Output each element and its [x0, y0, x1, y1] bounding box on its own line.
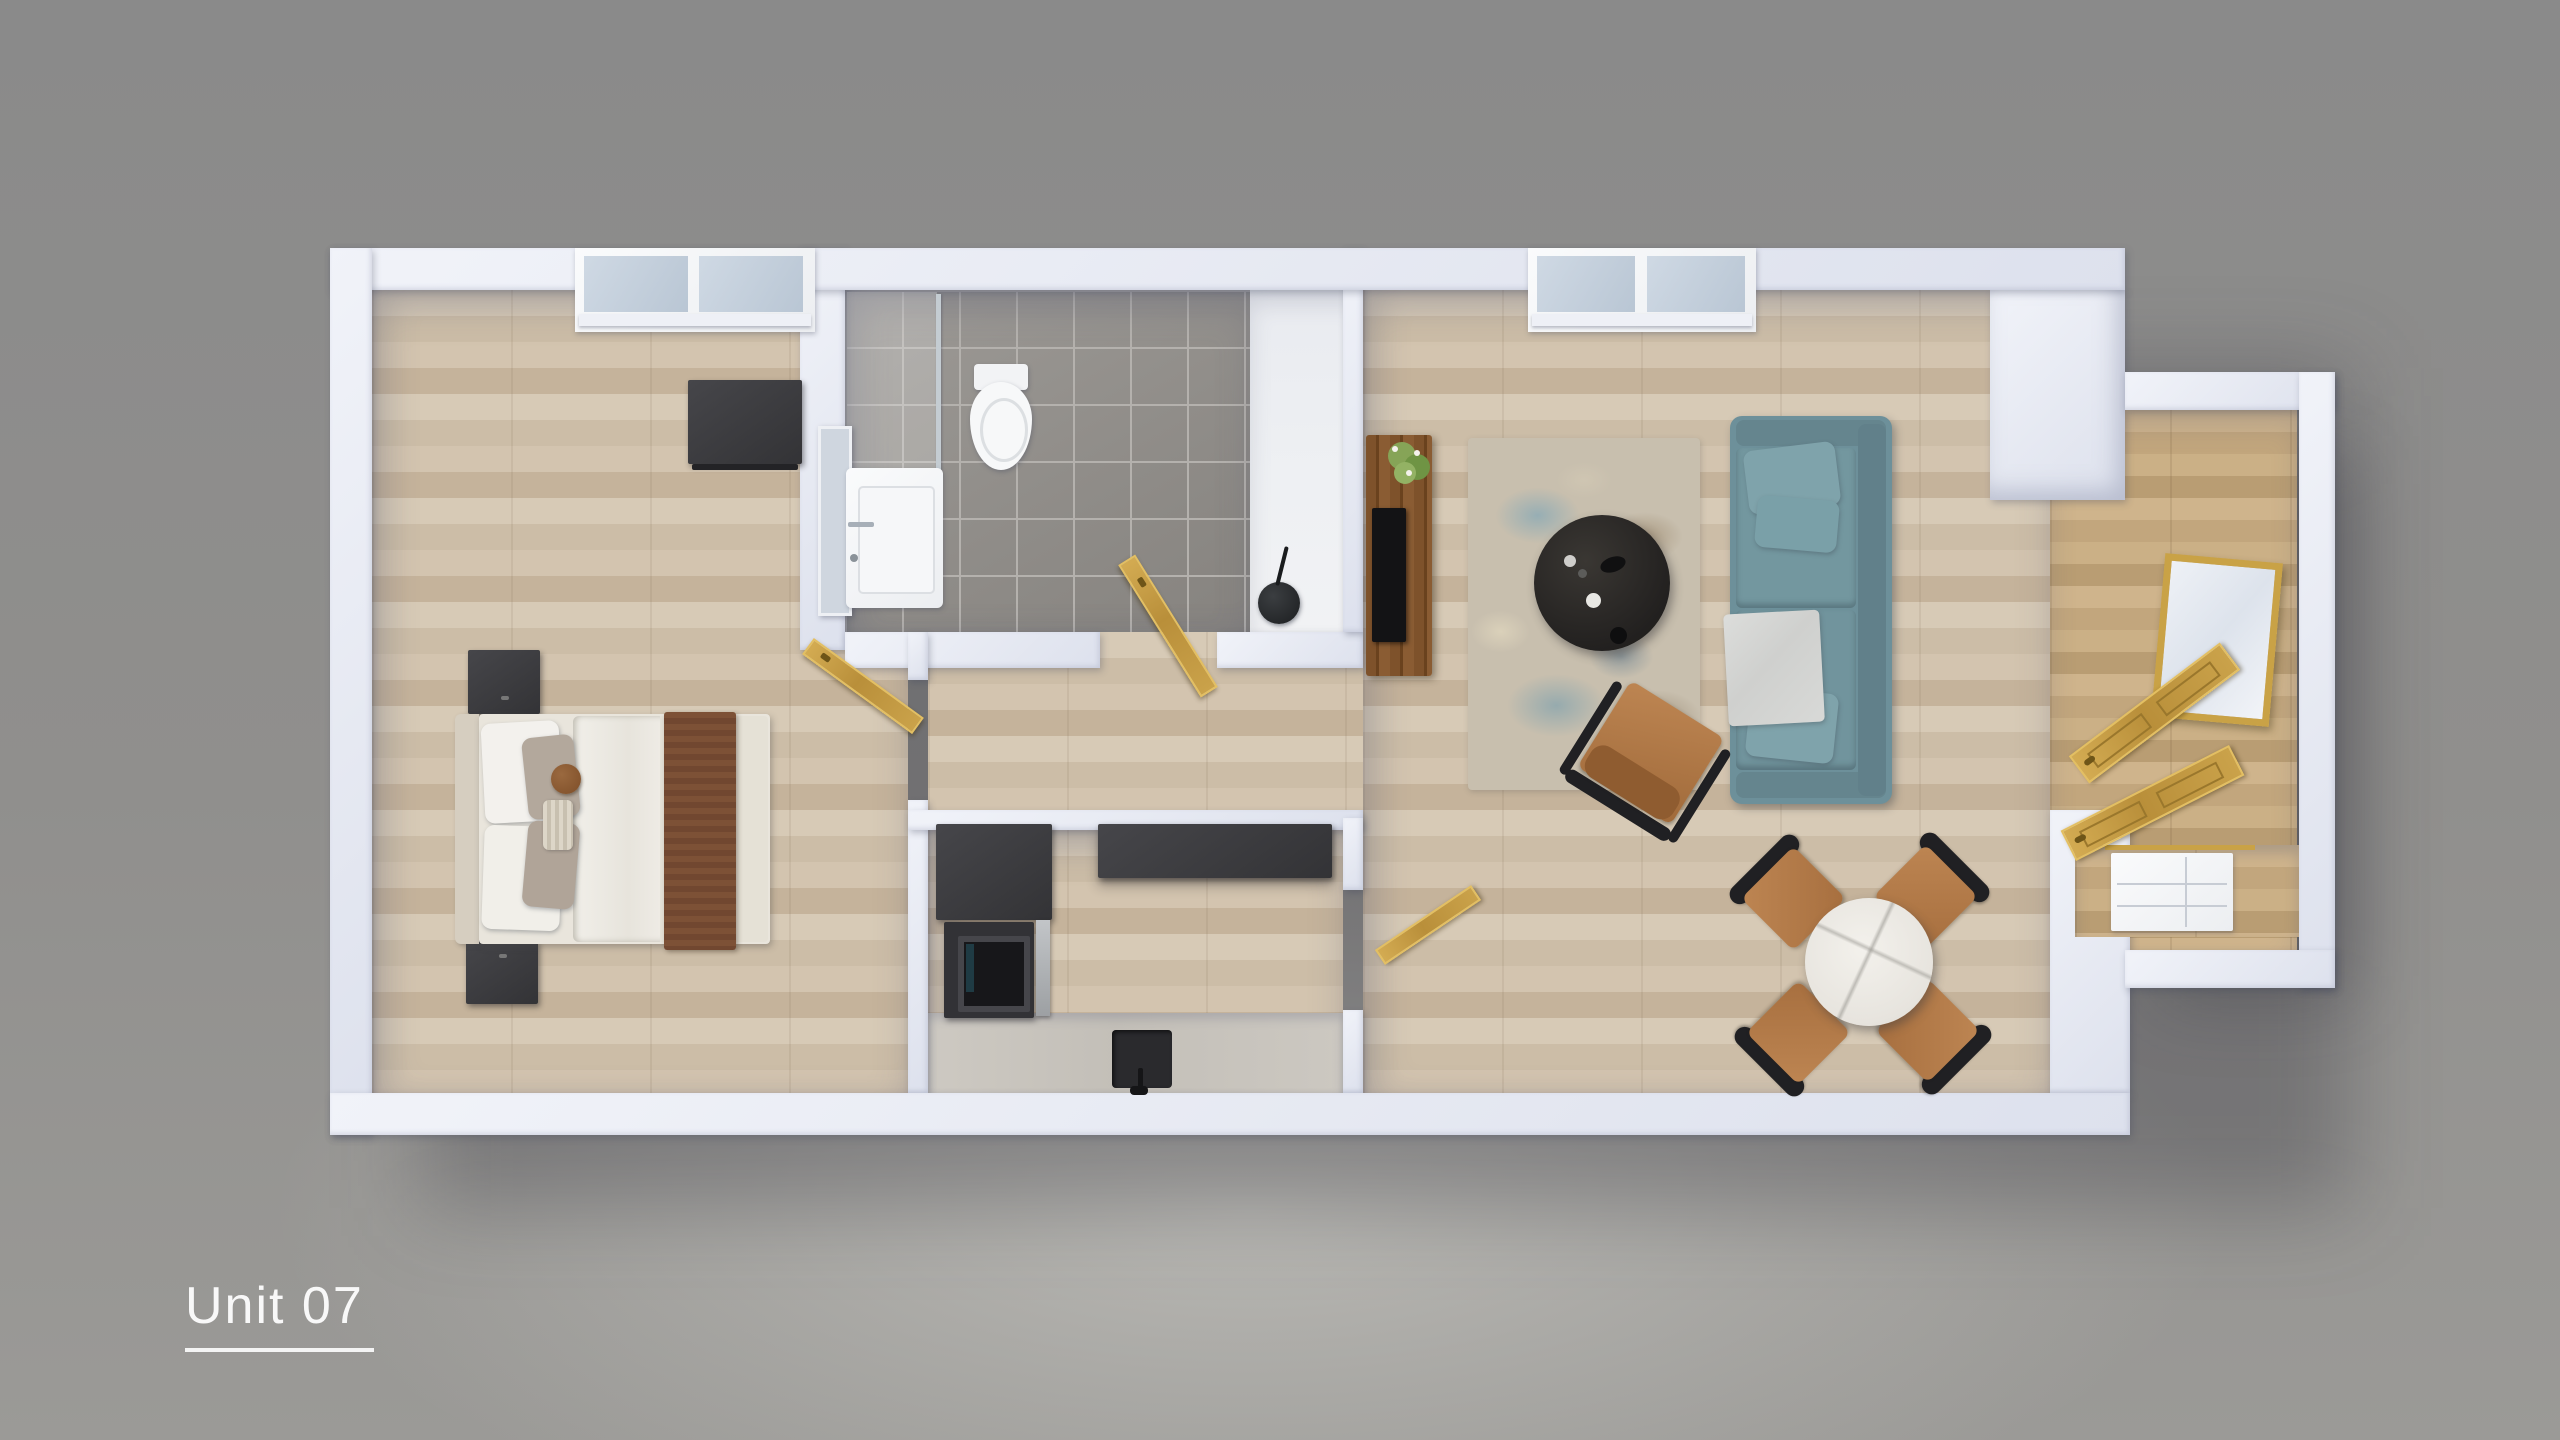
sideboard [2111, 853, 2233, 931]
wall-bathroom-south-right [1217, 632, 1363, 668]
unit-label[interactable]: Unit 07 [185, 1276, 374, 1352]
closet-block [1990, 290, 2125, 500]
door-handle [2083, 755, 2096, 767]
plant-foliage [1394, 462, 1416, 484]
toilet-seat [980, 398, 1028, 462]
nightstand-handle [501, 696, 509, 700]
wall-west [330, 248, 372, 1135]
wall-utility-living [1343, 248, 1363, 632]
vanity-basin [858, 486, 935, 594]
bedroom-window [575, 248, 815, 332]
bedroom-window-pane [699, 256, 803, 312]
table-decor-tray [1598, 553, 1627, 575]
table-decor-cup [1578, 569, 1587, 578]
wall-kitchen-living-upper [1343, 818, 1363, 890]
living-room-floor [1363, 290, 2050, 1093]
table-decor-cup [1564, 555, 1576, 567]
sofa-backrest [1858, 424, 1886, 796]
bedroom-window-sill [579, 314, 811, 326]
living-window-pane [1537, 256, 1635, 312]
plant [1384, 436, 1436, 492]
bed-cushion-striped [543, 800, 573, 850]
sofa-throw-blanket [1723, 610, 1825, 727]
sideboard-drawer-line [2117, 905, 2227, 907]
sideboard-drawer-line [2117, 883, 2227, 885]
fridge [936, 824, 1052, 920]
shower-glass [936, 294, 941, 476]
stage: Unit 07 [0, 0, 2560, 1440]
nightstand-north [468, 650, 540, 714]
table-decor-ball [1586, 593, 1601, 608]
double-bed [455, 714, 770, 944]
bed-cushion-round [551, 764, 581, 794]
door-handle [1137, 576, 1147, 588]
plant-flower [1406, 470, 1412, 476]
plant-flower [1414, 450, 1420, 456]
dishwasher-front [1036, 920, 1050, 1016]
wall-kitchen-living-lower [1343, 1010, 1363, 1093]
round-coffee-table [1534, 515, 1670, 651]
wall-bedroom-hall-stub [908, 632, 928, 680]
sofa-pillow [1754, 495, 1840, 554]
kitchen-wall-shelf [1098, 824, 1332, 878]
table-decor-bowl [1610, 627, 1627, 644]
kitchen-faucet-base [1130, 1086, 1148, 1095]
vanity-faucet [848, 522, 874, 527]
niche-brass-trim [2105, 845, 2255, 850]
wall-south [330, 1093, 2130, 1135]
bed-throw-blanket [664, 712, 736, 950]
vanity-faucet-dot [850, 554, 858, 562]
bed-headboard [455, 714, 479, 944]
tv [1372, 508, 1406, 642]
wall-bathroom-south-left [845, 632, 1100, 668]
wall-bedroom-kitchen [908, 800, 928, 1093]
living-window-sill [1532, 314, 1752, 326]
oven-unit [944, 922, 1034, 1018]
utility-basin [1258, 582, 1300, 624]
dining-table [1805, 898, 1933, 1026]
nightstand-south [466, 940, 538, 1004]
nightstand-handle [499, 954, 507, 958]
living-window [1528, 248, 1756, 332]
sideboard-divider [2185, 857, 2187, 927]
door-handle [820, 652, 832, 663]
bedroom-window-pane [584, 256, 688, 312]
vanity-sink [846, 468, 943, 608]
bed-duvet [573, 716, 665, 942]
plant-flower [1392, 446, 1398, 452]
oven-glass-glint [966, 944, 974, 992]
shower-area [847, 292, 937, 474]
sideboard-niche [2075, 845, 2299, 937]
living-window-pane [1647, 256, 1745, 312]
dresser [688, 380, 802, 464]
sofa [1730, 416, 1892, 804]
wall-entry-south [2125, 950, 2335, 988]
dresser-front-edge [692, 464, 798, 470]
toilet [966, 364, 1036, 474]
wall-entry-east [2299, 372, 2335, 988]
